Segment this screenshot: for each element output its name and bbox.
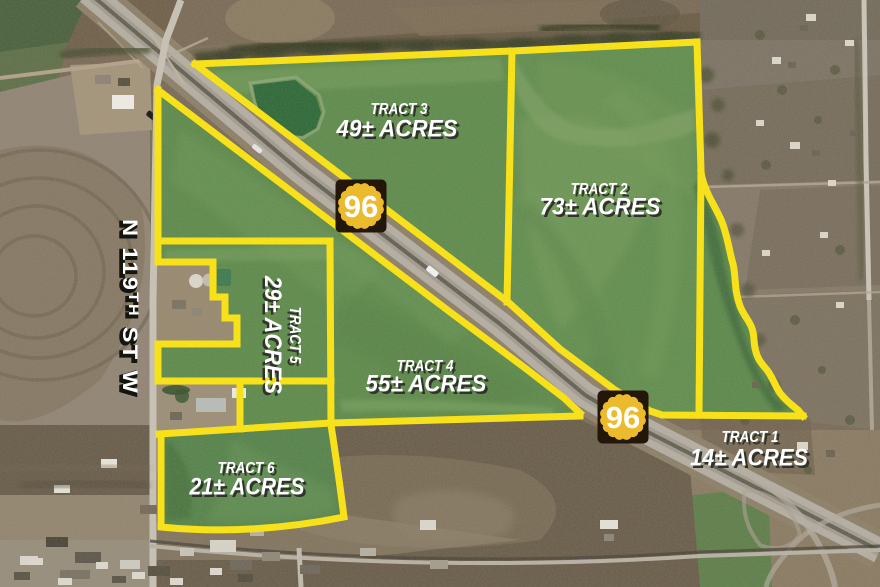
svg-text:96: 96 [606, 400, 640, 435]
svg-text:96: 96 [344, 189, 378, 224]
svg-text:49± ACRES: 49± ACRES [336, 116, 459, 143]
svg-text:73± ACRES: 73± ACRES [540, 194, 662, 221]
svg-text:21± ACRES: 21± ACRES [189, 474, 305, 501]
svg-text:55± ACRES: 55± ACRES [366, 371, 488, 398]
svg-text:29± ACRES: 29± ACRES [259, 275, 286, 394]
svg-text:TRACT 1: TRACT 1 [722, 429, 779, 446]
svg-text:14± ACRES: 14± ACRES [690, 445, 809, 472]
svg-text:TRACT 5: TRACT 5 [286, 307, 303, 365]
